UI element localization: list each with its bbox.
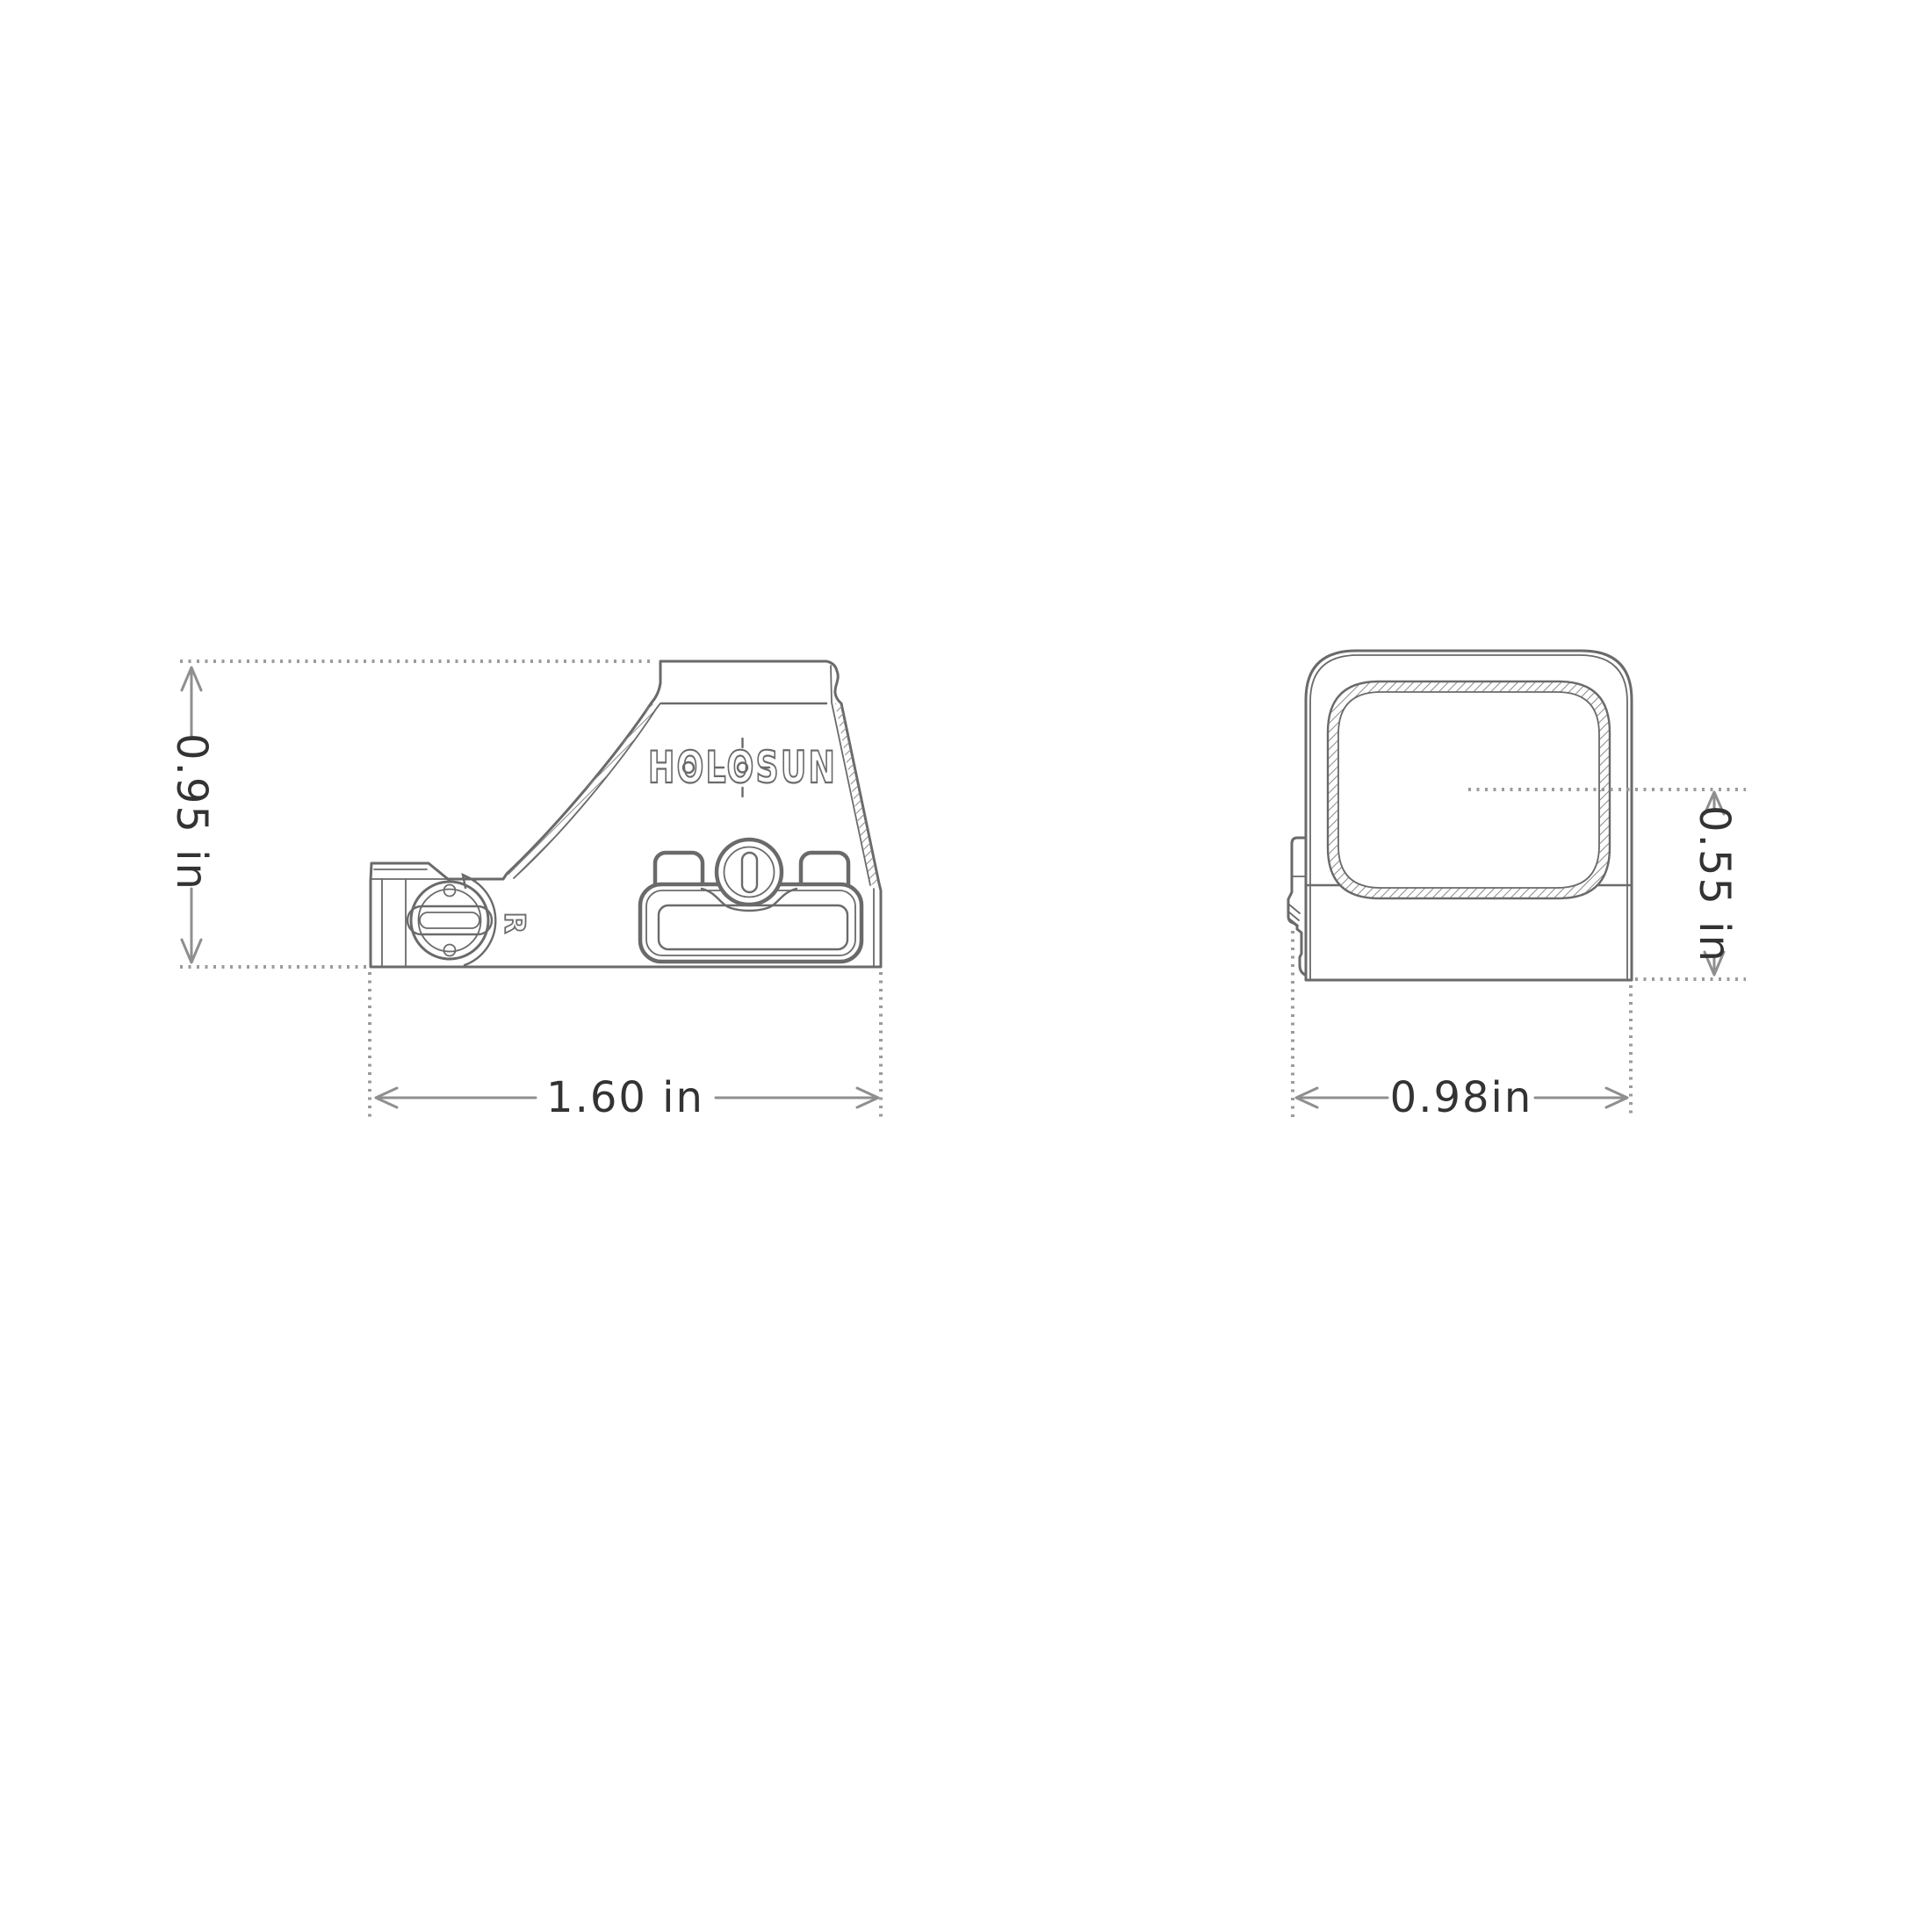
dim-side-length: 1.60 in [376, 1073, 878, 1122]
dim-side-height-label: 0.95 in [167, 733, 216, 891]
dim-side-height: 0.95 in [167, 667, 216, 962]
dim-side-length-label: 1.60 in [546, 1073, 704, 1122]
button-ring-outer [717, 840, 782, 905]
dim-front-width-label: 0.98in [1390, 1073, 1533, 1122]
dial-direction-label: R [498, 912, 531, 934]
dim-front-width: 0.98in [1296, 1073, 1627, 1122]
side-button-assembly [640, 840, 861, 962]
dim-front-height-label: 0.55 in [1690, 805, 1739, 963]
dim-front-height: 0.55 in [1690, 792, 1739, 975]
side-view-drawing: R HOLOSUN [371, 661, 881, 967]
brand-logo: HOLOSUN [648, 739, 837, 797]
dial-outer-circle [411, 882, 488, 959]
brand-logo-text: HOLOSUN [648, 742, 837, 793]
dimension-diagram: R HOLOSUN [0, 0, 1932, 1932]
front-view-drawing [1288, 651, 1632, 980]
